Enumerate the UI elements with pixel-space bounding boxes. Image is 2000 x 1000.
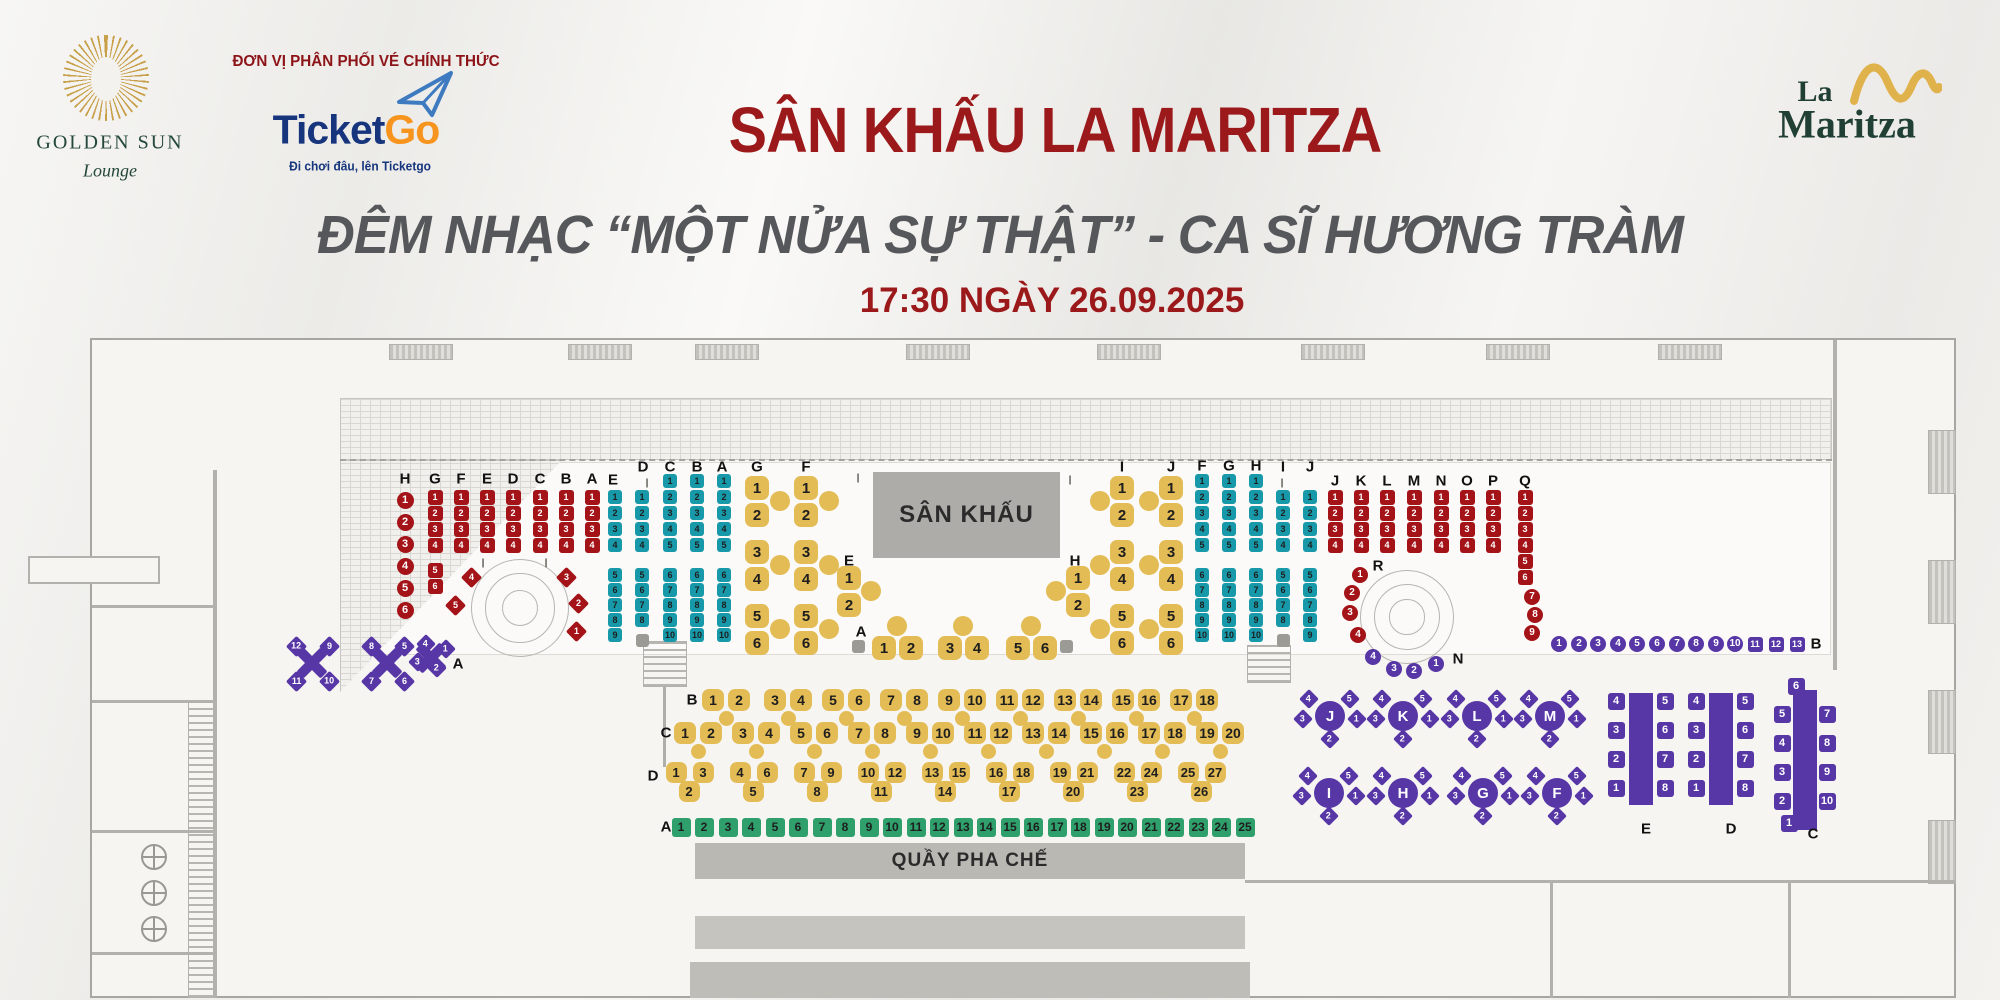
seat-row-D-diamond[interactable]: 2 [679,781,700,802]
seat-col-Q[interactable]: 2 [1518,506,1533,521]
seat-col-C-gold[interactable]: 5 [663,538,677,552]
standard-C-seat[interactable]: 9 [1819,764,1836,781]
seat-col-F-gold[interactable]: 2 [1195,490,1209,504]
seat-row-D-diamond[interactable]: 5 [743,781,764,802]
seat-row-B-diamond[interactable]: 18 [1196,689,1218,711]
seat-row-B-diamond[interactable]: 4 [790,689,812,711]
seat-col-C-gold[interactable]: 9 [663,613,677,627]
seat-col-F[interactable]: 1 [454,490,469,505]
seat-col-J-diamond[interactable]: 6 [1159,631,1183,655]
standard-C-seat[interactable]: 3 [1774,764,1791,781]
seat-row-C-diamond[interactable]: 15 [1080,722,1102,744]
seat-col-C[interactable]: 3 [533,522,548,537]
table-chair[interactable] [807,744,822,759]
seat-row-A-platinum[interactable]: 16 [1024,818,1043,837]
seat-col-G-diamond[interactable]: 3 [745,540,769,564]
seat-row-D-diamond[interactable]: 6 [757,762,778,783]
seat-row-A-diamond[interactable]: 3 [938,636,962,660]
seat-col-H-gold[interactable]: 3 [1249,506,1263,520]
seat-col-F-diamond[interactable]: 1 [794,476,818,500]
seat-row-D-diamond[interactable]: 20 [1063,781,1084,802]
seat-row-C-diamond[interactable]: 7 [848,722,870,744]
standard-E-seat[interactable]: 6 [1657,722,1674,739]
seat-col-I-diamond[interactable]: 3 [1110,540,1134,564]
seat-col-G[interactable]: 1 [428,490,443,505]
seat-row-A-diamond[interactable]: 1 [872,636,896,660]
standard-table-G[interactable]: G [1468,778,1498,808]
seat-row-B-standard[interactable]: 10 [1727,636,1743,652]
seat-col-G-gold[interactable]: 3 [1222,506,1236,520]
seat-row-D-diamond[interactable]: 16 [986,762,1007,783]
seat-row-D-diamond[interactable]: 13 [922,762,943,783]
round-table-R-seat[interactable]: 4 [1350,627,1366,643]
seat-col-A-gold[interactable]: 1 [717,474,731,488]
round-table-N-seat[interactable]: 3 [1386,661,1402,677]
seat-row-B-standard[interactable]: 11 [1748,637,1763,652]
seat-col-N[interactable]: 4 [1434,538,1449,553]
seat-row-D-diamond[interactable]: 22 [1114,762,1135,783]
seat-col-A-gold[interactable]: 6 [717,568,731,582]
seat-col-O[interactable]: 2 [1460,506,1475,521]
standard-table-M[interactable]: M [1535,701,1565,731]
seat-col-D-gold[interactable]: 7 [635,598,649,612]
seat-col-H[interactable]: 6 [397,602,414,619]
seat-col-C-gold[interactable]: 8 [663,598,677,612]
standard-table-L[interactable]: L [1462,701,1492,731]
seat-row-A-platinum[interactable]: 3 [719,818,738,837]
standard-C-seat[interactable]: 5 [1774,706,1791,723]
seat-col-D-gold[interactable]: 6 [635,583,649,597]
seat-row-C-diamond[interactable]: 5 [790,722,812,744]
seat-col-H-diamond[interactable]: 2 [1066,593,1090,617]
seat-col-I-diamond[interactable]: 2 [1110,503,1134,527]
table-chair[interactable] [770,619,790,639]
seat-row-A-platinum[interactable]: 11 [907,818,926,837]
seat-col-B-gold[interactable]: 5 [690,538,704,552]
standard-E-seat[interactable]: 4 [1608,693,1625,710]
seat-col-G-gold[interactable]: 5 [1222,538,1236,552]
round-table-N-seat[interactable]: 2 [1406,663,1422,679]
seat-row-D-diamond[interactable]: 3 [693,762,714,783]
standard-table-F[interactable]: F [1542,778,1572,808]
standard-table-J[interactable]: J [1315,701,1345,731]
seat-row-D-diamond[interactable]: 8 [807,781,828,802]
seat-col-Q[interactable]: 8 [1527,607,1543,623]
seat-row-A-platinum[interactable]: 20 [1118,818,1137,837]
seat-row-B-diamond[interactable]: 5 [822,689,844,711]
table-chair[interactable] [770,555,790,575]
seat-row-A-platinum[interactable]: 24 [1212,818,1231,837]
table-chair[interactable] [819,491,839,511]
standard-D-seat[interactable]: 3 [1688,722,1705,739]
seat-col-E[interactable]: 2 [480,506,495,521]
seat-row-B-diamond[interactable]: 6 [848,689,870,711]
seat-row-C-diamond[interactable]: 8 [874,722,896,744]
seat-col-G-gold[interactable]: 8 [1222,598,1236,612]
table-chair[interactable] [691,744,706,759]
seat-col-F-gold[interactable]: 8 [1195,598,1209,612]
table-chair[interactable] [1090,555,1110,575]
seat-col-I-gold[interactable]: 8 [1276,613,1290,627]
seat-col-Q[interactable]: 4 [1518,538,1533,553]
seat-col-N[interactable]: 3 [1434,522,1449,537]
seat-col-B-gold[interactable]: 2 [690,490,704,504]
seat-col-P[interactable]: 2 [1486,506,1501,521]
seat-row-B-standard[interactable]: 4 [1610,636,1626,652]
standard-D-seat[interactable]: 2 [1688,751,1705,768]
seat-row-A-diamond[interactable]: 5 [1006,636,1030,660]
seat-row-D-diamond[interactable]: 25 [1178,762,1199,783]
seat-col-A-gold[interactable]: 5 [717,538,731,552]
standard-E-seat[interactable]: 8 [1657,780,1674,797]
seat-col-E-gold[interactable]: 5 [608,568,622,582]
seat-col-A-gold[interactable]: 8 [717,598,731,612]
seat-col-D-gold[interactable]: 1 [635,490,649,504]
standard-D-seat[interactable]: 4 [1688,693,1705,710]
seat-row-C-diamond[interactable]: 17 [1138,722,1160,744]
seat-col-B-gold[interactable]: 8 [690,598,704,612]
seat-col-G[interactable]: 4 [428,538,443,553]
seat-row-D-diamond[interactable]: 21 [1077,762,1098,783]
seat-col-E-gold[interactable]: 6 [608,583,622,597]
seat-col-G-diamond[interactable]: 4 [745,567,769,591]
seat-col-B[interactable]: 1 [559,490,574,505]
table-chair[interactable] [887,616,907,636]
seat-row-D-diamond[interactable]: 7 [794,762,815,783]
seat-col-L[interactable]: 3 [1380,522,1395,537]
seat-col-H-gold[interactable]: 2 [1249,490,1263,504]
seat-row-C-diamond[interactable]: 12 [990,722,1012,744]
pillar-block[interactable] [1277,634,1290,647]
seat-col-J-gold[interactable]: 3 [1303,522,1317,536]
seat-col-F-diamond[interactable]: 2 [794,503,818,527]
seat-col-G[interactable]: 2 [428,506,443,521]
seat-col-C[interactable]: 2 [533,506,548,521]
seat-row-A-platinum[interactable]: 8 [836,818,855,837]
seat-col-J-diamond[interactable]: 3 [1159,540,1183,564]
table-chair[interactable] [1039,744,1054,759]
seat-col-J-gold[interactable]: 6 [1303,583,1317,597]
table-chair[interactable] [770,491,790,511]
seat-col-H-gold[interactable]: 1 [1249,474,1263,488]
pillar-block[interactable] [636,634,649,647]
seat-row-C-diamond[interactable]: 14 [1048,722,1070,744]
seat-col-H-gold[interactable]: 4 [1249,522,1263,536]
seat-col-M[interactable]: 2 [1407,506,1422,521]
seat-col-H[interactable]: 1 [397,492,414,509]
seat-col-F-diamond[interactable]: 3 [794,540,818,564]
table-chair[interactable] [1155,744,1170,759]
seat-col-B-gold[interactable]: 10 [690,628,704,642]
seat-row-A-platinum[interactable]: 21 [1142,818,1161,837]
seat-col-F-gold[interactable]: 7 [1195,583,1209,597]
seat-row-A-platinum[interactable]: 1 [672,818,691,837]
seat-col-B[interactable]: 3 [559,522,574,537]
seat-row-A-platinum[interactable]: 13 [954,818,973,837]
seat-col-Q[interactable]: 6 [1518,570,1533,585]
seat-col-F-gold[interactable]: 3 [1195,506,1209,520]
seat-col-D-gold[interactable]: 5 [635,568,649,582]
seat-col-D[interactable]: 2 [506,506,521,521]
seat-col-H-diamond[interactable]: 1 [1066,566,1090,590]
seat-col-I-diamond[interactable]: 1 [1110,476,1134,500]
seat-row-B-standard[interactable]: 1 [1551,636,1567,652]
seat-row-A-platinum[interactable]: 10 [883,818,902,837]
seat-col-I-gold[interactable]: 6 [1276,583,1290,597]
seat-col-K[interactable]: 3 [1354,522,1369,537]
seat-col-A[interactable]: 2 [585,506,600,521]
seat-col-Q[interactable]: 1 [1518,490,1533,505]
seat-col-G[interactable]: 5 [428,563,443,578]
seat-row-B-standard[interactable]: 12 [1769,637,1784,652]
seat-row-A-platinum[interactable]: 14 [977,818,996,837]
seat-col-N[interactable]: 2 [1434,506,1449,521]
seat-col-E[interactable]: 1 [480,490,495,505]
round-table-N-seat[interactable]: 4 [1365,649,1381,665]
seat-col-B-gold[interactable]: 7 [690,583,704,597]
seat-col-D[interactable]: 1 [506,490,521,505]
seat-col-L[interactable]: 4 [1380,538,1395,553]
table-chair[interactable] [1213,744,1228,759]
seat-row-D-diamond[interactable]: 12 [885,762,906,783]
seat-col-C-gold[interactable]: 10 [663,628,677,642]
seat-row-B-diamond[interactable]: 11 [996,689,1018,711]
seat-col-A[interactable]: 1 [585,490,600,505]
seat-col-F[interactable]: 2 [454,506,469,521]
seat-row-B-diamond[interactable]: 8 [906,689,928,711]
seat-col-B[interactable]: 2 [559,506,574,521]
seat-row-B-standard[interactable]: 13 [1790,637,1805,652]
seat-col-G-gold[interactable]: 2 [1222,490,1236,504]
standard-D-seat[interactable]: 6 [1737,722,1754,739]
seat-col-D-gold[interactable]: 4 [635,538,649,552]
seat-row-C-diamond[interactable]: 11 [964,722,986,744]
seat-col-J-diamond[interactable]: 4 [1159,567,1183,591]
seat-col-I-gold[interactable]: 3 [1276,522,1290,536]
seat-row-B-diamond[interactable]: 10 [964,689,986,711]
seat-row-B-diamond[interactable]: 13 [1054,689,1076,711]
seat-row-C-diamond[interactable]: 6 [816,722,838,744]
seat-col-A[interactable]: 3 [585,522,600,537]
seat-row-D-diamond[interactable]: 26 [1191,781,1212,802]
seat-row-A-platinum[interactable]: 17 [1048,818,1067,837]
seat-col-D[interactable]: 4 [506,538,521,553]
seat-col-F-gold[interactable]: 10 [1195,628,1209,642]
seat-row-C-diamond[interactable]: 10 [932,722,954,744]
seat-row-D-diamond[interactable]: 4 [730,762,751,783]
standard-table-H[interactable]: H [1388,778,1418,808]
standard-C-seat[interactable]: 2 [1774,793,1791,810]
seat-col-H-gold[interactable]: 7 [1249,583,1263,597]
table-chair[interactable] [953,616,973,636]
seat-col-G-gold[interactable]: 6 [1222,568,1236,582]
standard-C-seat[interactable]: 7 [1819,706,1836,723]
seat-col-C-gold[interactable]: 7 [663,583,677,597]
seat-row-D-diamond[interactable]: 1 [666,762,687,783]
seat-col-C-gold[interactable]: 3 [663,506,677,520]
seat-col-A-gold[interactable]: 10 [717,628,731,642]
seat-col-I-gold[interactable]: 4 [1276,538,1290,552]
seat-row-D-diamond[interactable]: 10 [858,762,879,783]
seat-col-I-gold[interactable]: 7 [1276,598,1290,612]
seat-row-A-diamond[interactable]: 4 [965,636,989,660]
seat-col-I-diamond[interactable]: 6 [1110,631,1134,655]
seat-row-B-diamond[interactable]: 2 [728,689,750,711]
seat-row-A-platinum[interactable]: 19 [1095,818,1114,837]
seat-col-B-gold[interactable]: 6 [690,568,704,582]
seat-col-E-gold[interactable]: 7 [608,598,622,612]
table-chair[interactable] [1021,616,1041,636]
seat-col-B-gold[interactable]: 4 [690,522,704,536]
seat-col-M[interactable]: 1 [1407,490,1422,505]
standard-table-K[interactable]: K [1388,701,1418,731]
pillar-block[interactable] [852,640,865,653]
seat-row-A-platinum[interactable]: 15 [1001,818,1020,837]
table-chair[interactable] [923,744,938,759]
seat-col-H-gold[interactable]: 9 [1249,613,1263,627]
seat-col-K[interactable]: 2 [1354,506,1369,521]
standard-E-seat[interactable]: 3 [1608,722,1625,739]
seat-col-H[interactable]: 3 [397,536,414,553]
seat-col-G[interactable]: 3 [428,522,443,537]
seat-col-Q[interactable]: 3 [1518,522,1533,537]
seat-row-D-diamond[interactable]: 18 [1013,762,1034,783]
table-chair[interactable] [1139,619,1159,639]
table-chair[interactable] [865,744,880,759]
seat-col-N[interactable]: 1 [1434,490,1449,505]
seat-row-B-standard[interactable]: 3 [1590,636,1606,652]
seat-col-J-gold[interactable]: 1 [1303,490,1317,504]
seat-col-J-gold[interactable]: 7 [1303,598,1317,612]
seat-col-A-gold[interactable]: 2 [717,490,731,504]
seat-row-A-platinum[interactable]: 12 [930,818,949,837]
standard-D-seat[interactable]: 1 [1688,780,1705,797]
seat-col-C[interactable]: 4 [533,538,548,553]
pillar-block[interactable] [1060,640,1073,653]
seat-col-C-gold[interactable]: 2 [663,490,677,504]
table-chair[interactable] [819,619,839,639]
seat-col-B[interactable]: 4 [559,538,574,553]
seat-col-O[interactable]: 4 [1460,538,1475,553]
seat-col-F-gold[interactable]: 9 [1195,613,1209,627]
seat-row-B-standard[interactable]: 8 [1688,636,1704,652]
table-chair[interactable] [819,555,839,575]
seat-col-H-gold[interactable]: 6 [1249,568,1263,582]
seat-col-H-gold[interactable]: 10 [1249,628,1263,642]
seat-row-C-diamond[interactable]: 13 [1022,722,1044,744]
seat-col-B-gold[interactable]: 9 [690,613,704,627]
seat-col-F-gold[interactable]: 5 [1195,538,1209,552]
standard-E-seat[interactable]: 1 [1608,780,1625,797]
table-chair[interactable] [861,581,881,601]
seat-col-M[interactable]: 3 [1407,522,1422,537]
seat-col-O[interactable]: 1 [1460,490,1475,505]
seat-col-F-diamond[interactable]: 6 [794,631,818,655]
seat-col-D-gold[interactable]: 8 [635,613,649,627]
seat-col-G[interactable]: 6 [428,579,443,594]
seat-col-F[interactable]: 4 [454,538,469,553]
seat-row-A-diamond[interactable]: 2 [899,636,923,660]
seat-col-I-gold[interactable]: 2 [1276,506,1290,520]
seat-col-A-gold[interactable]: 9 [717,613,731,627]
seat-col-F-gold[interactable]: 1 [1195,474,1209,488]
seat-col-E[interactable]: 4 [480,538,495,553]
seat-col-G-gold[interactable]: 1 [1222,474,1236,488]
standard-E-seat[interactable]: 5 [1657,693,1674,710]
seat-row-A-platinum[interactable]: 2 [695,818,714,837]
seat-col-J-silver[interactable]: 4 [1328,538,1343,553]
standard-C-seat[interactable]: 4 [1774,735,1791,752]
standard-C-seat[interactable]: 6 [1788,678,1805,695]
seat-row-D-diamond[interactable]: 19 [1050,762,1071,783]
table-chair[interactable] [1090,491,1110,511]
seat-col-G-gold[interactable]: 4 [1222,522,1236,536]
seat-col-K[interactable]: 4 [1354,538,1369,553]
round-table-R-seat[interactable]: 3 [1342,605,1358,621]
seat-col-I-gold[interactable]: 1 [1276,490,1290,504]
table-chair[interactable] [1046,581,1066,601]
seat-col-J-gold[interactable]: 9 [1303,628,1317,642]
seat-row-B-standard[interactable]: 7 [1669,636,1685,652]
seat-row-B-diamond[interactable]: 16 [1138,689,1160,711]
seat-row-B-diamond[interactable]: 1 [702,689,724,711]
seat-col-E-gold[interactable]: 2 [608,506,622,520]
seat-col-F-diamond[interactable]: 4 [794,567,818,591]
table-chair[interactable] [1097,744,1112,759]
seat-col-H-gold[interactable]: 8 [1249,598,1263,612]
seat-col-E-gold[interactable]: 8 [608,613,622,627]
seat-row-C-diamond[interactable]: 18 [1164,722,1186,744]
seat-row-A-diamond[interactable]: 6 [1033,636,1057,660]
seat-row-B-diamond[interactable]: 15 [1112,689,1134,711]
seat-row-C-diamond[interactable]: 2 [700,722,722,744]
seat-col-J-diamond[interactable]: 5 [1159,604,1183,628]
seat-col-E-diamond[interactable]: 2 [837,593,861,617]
seat-col-B-gold[interactable]: 3 [690,506,704,520]
seat-col-A-gold[interactable]: 7 [717,583,731,597]
table-chair[interactable] [1139,491,1159,511]
standard-E-seat[interactable]: 7 [1657,751,1674,768]
table-chair[interactable] [981,744,996,759]
table-chair[interactable] [1090,619,1110,639]
seat-col-J-gold[interactable]: 2 [1303,506,1317,520]
seat-row-A-platinum[interactable]: 23 [1189,818,1208,837]
seat-col-J-diamond[interactable]: 2 [1159,503,1183,527]
seat-col-A[interactable]: 4 [585,538,600,553]
seat-col-H[interactable]: 2 [397,514,414,531]
seat-col-L[interactable]: 2 [1380,506,1395,521]
seat-col-J-silver[interactable]: 2 [1328,506,1343,521]
seat-col-P[interactable]: 4 [1486,538,1501,553]
seat-row-D-diamond[interactable]: 9 [821,762,842,783]
seat-row-A-platinum[interactable]: 18 [1071,818,1090,837]
table-chair[interactable] [1139,555,1159,575]
seat-row-B-diamond[interactable]: 17 [1170,689,1192,711]
seat-col-F-gold[interactable]: 4 [1195,522,1209,536]
seat-col-H[interactable]: 4 [397,558,414,575]
seat-row-B-diamond[interactable]: 14 [1080,689,1102,711]
seat-row-B-diamond[interactable]: 12 [1022,689,1044,711]
table-chair[interactable] [719,711,734,726]
seat-row-A-platinum[interactable]: 9 [860,818,879,837]
seat-row-D-diamond[interactable]: 23 [1127,781,1148,802]
seat-col-Q[interactable]: 7 [1524,589,1540,605]
standard-D-seat[interactable]: 8 [1737,780,1754,797]
seat-col-Q[interactable]: 9 [1524,625,1540,641]
standard-E-seat[interactable]: 2 [1608,751,1625,768]
seat-row-A-platinum[interactable]: 25 [1236,818,1255,837]
seat-col-J-diamond[interactable]: 1 [1159,476,1183,500]
